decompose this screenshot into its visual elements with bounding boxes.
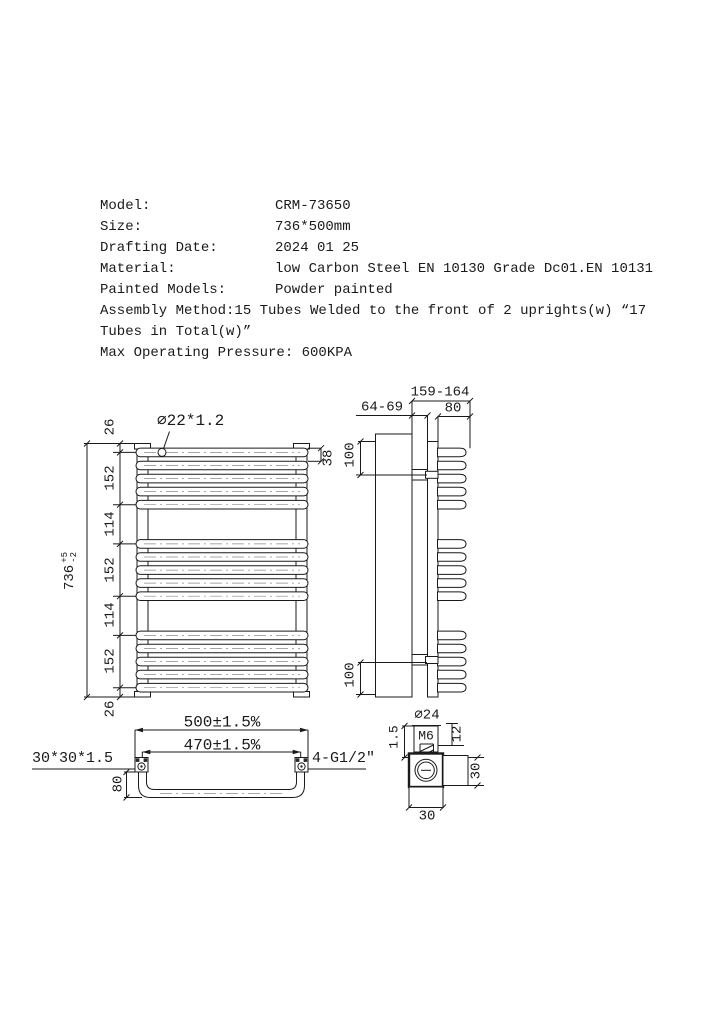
chain-dim-26-bottom: 26	[104, 701, 119, 718]
bracket-top-offset-label: 100	[344, 442, 359, 467]
wall-distance-label: 64-69	[361, 401, 403, 416]
port-centers-label: 470±1.5%	[184, 739, 261, 754]
step-label: 1.5	[387, 725, 402, 748]
radiator-tube-end	[438, 631, 467, 640]
radiator-tube-end	[438, 487, 467, 496]
chain-dim-152-2: 152	[104, 557, 119, 582]
boss-height-label: 12	[451, 726, 466, 743]
radiator-tube-end	[438, 566, 467, 575]
radiator-tube-end	[438, 553, 467, 562]
fitting-width-label: 30	[419, 810, 436, 825]
collector-depth-label: 80	[112, 776, 127, 793]
chain-dim-26-top: 26	[104, 419, 119, 436]
overall-width-label: 500±1.5%	[184, 716, 261, 731]
radiator-tube-end	[438, 670, 467, 679]
tube-leader-dot	[158, 448, 166, 456]
tube-spec-label: ∅22*1.2	[157, 414, 224, 429]
connections-label: 4-G1/2″	[312, 751, 375, 766]
fitting-right	[295, 758, 308, 773]
mounting-bracket-bottom	[412, 655, 438, 666]
radiator-tube-end	[438, 448, 467, 457]
front-tubes	[136, 448, 308, 692]
front-view-drawing	[84, 432, 321, 698]
overall-height-label: 736 +5-2	[61, 552, 79, 590]
radiator-tube-end	[438, 474, 467, 483]
tube-depth-label: 80	[445, 402, 462, 417]
port-diameter-label: ∅24	[414, 709, 439, 724]
radiator-tube-end	[438, 592, 467, 601]
radiator-tube-end	[438, 461, 467, 470]
overall-depth-label: 159-164	[411, 386, 470, 401]
upright-section-label: 30*30*1.5	[32, 751, 113, 766]
drawing-canvas	[0, 0, 720, 1018]
side-view-drawing	[356, 401, 470, 697]
radiator-tube-end	[438, 579, 467, 588]
collector-tube-inner	[147, 772, 297, 790]
wall-section	[376, 434, 413, 697]
fitting-side-label: 30	[470, 763, 485, 780]
radiator-tube-end	[438, 683, 467, 692]
chain-dim-152-3: 152	[104, 648, 119, 673]
radiator-tube-end	[438, 500, 467, 509]
thread-label: M6	[418, 729, 434, 744]
chain-dim-114-2: 114	[104, 602, 119, 627]
height-tolerance: +5-2	[61, 552, 79, 563]
technical-drawing-sheet: Model:CRM-73650 Size:736*500mm Drafting …	[0, 0, 720, 1018]
bracket-bottom-offset-label: 100	[344, 662, 359, 687]
radiator-tube-end	[438, 644, 467, 653]
chain-dim-152-1: 152	[104, 465, 119, 490]
chain-dim-114-1: 114	[104, 511, 119, 536]
side-tube-ends	[438, 448, 467, 692]
radiator-tube-end	[438, 657, 467, 666]
fitting-block-bottom	[409, 787, 443, 808]
radiator-tube-end	[438, 540, 467, 549]
tube-pitch-label: 38	[322, 450, 337, 467]
fitting-block-side	[443, 756, 468, 786]
fitting-left	[135, 758, 148, 773]
